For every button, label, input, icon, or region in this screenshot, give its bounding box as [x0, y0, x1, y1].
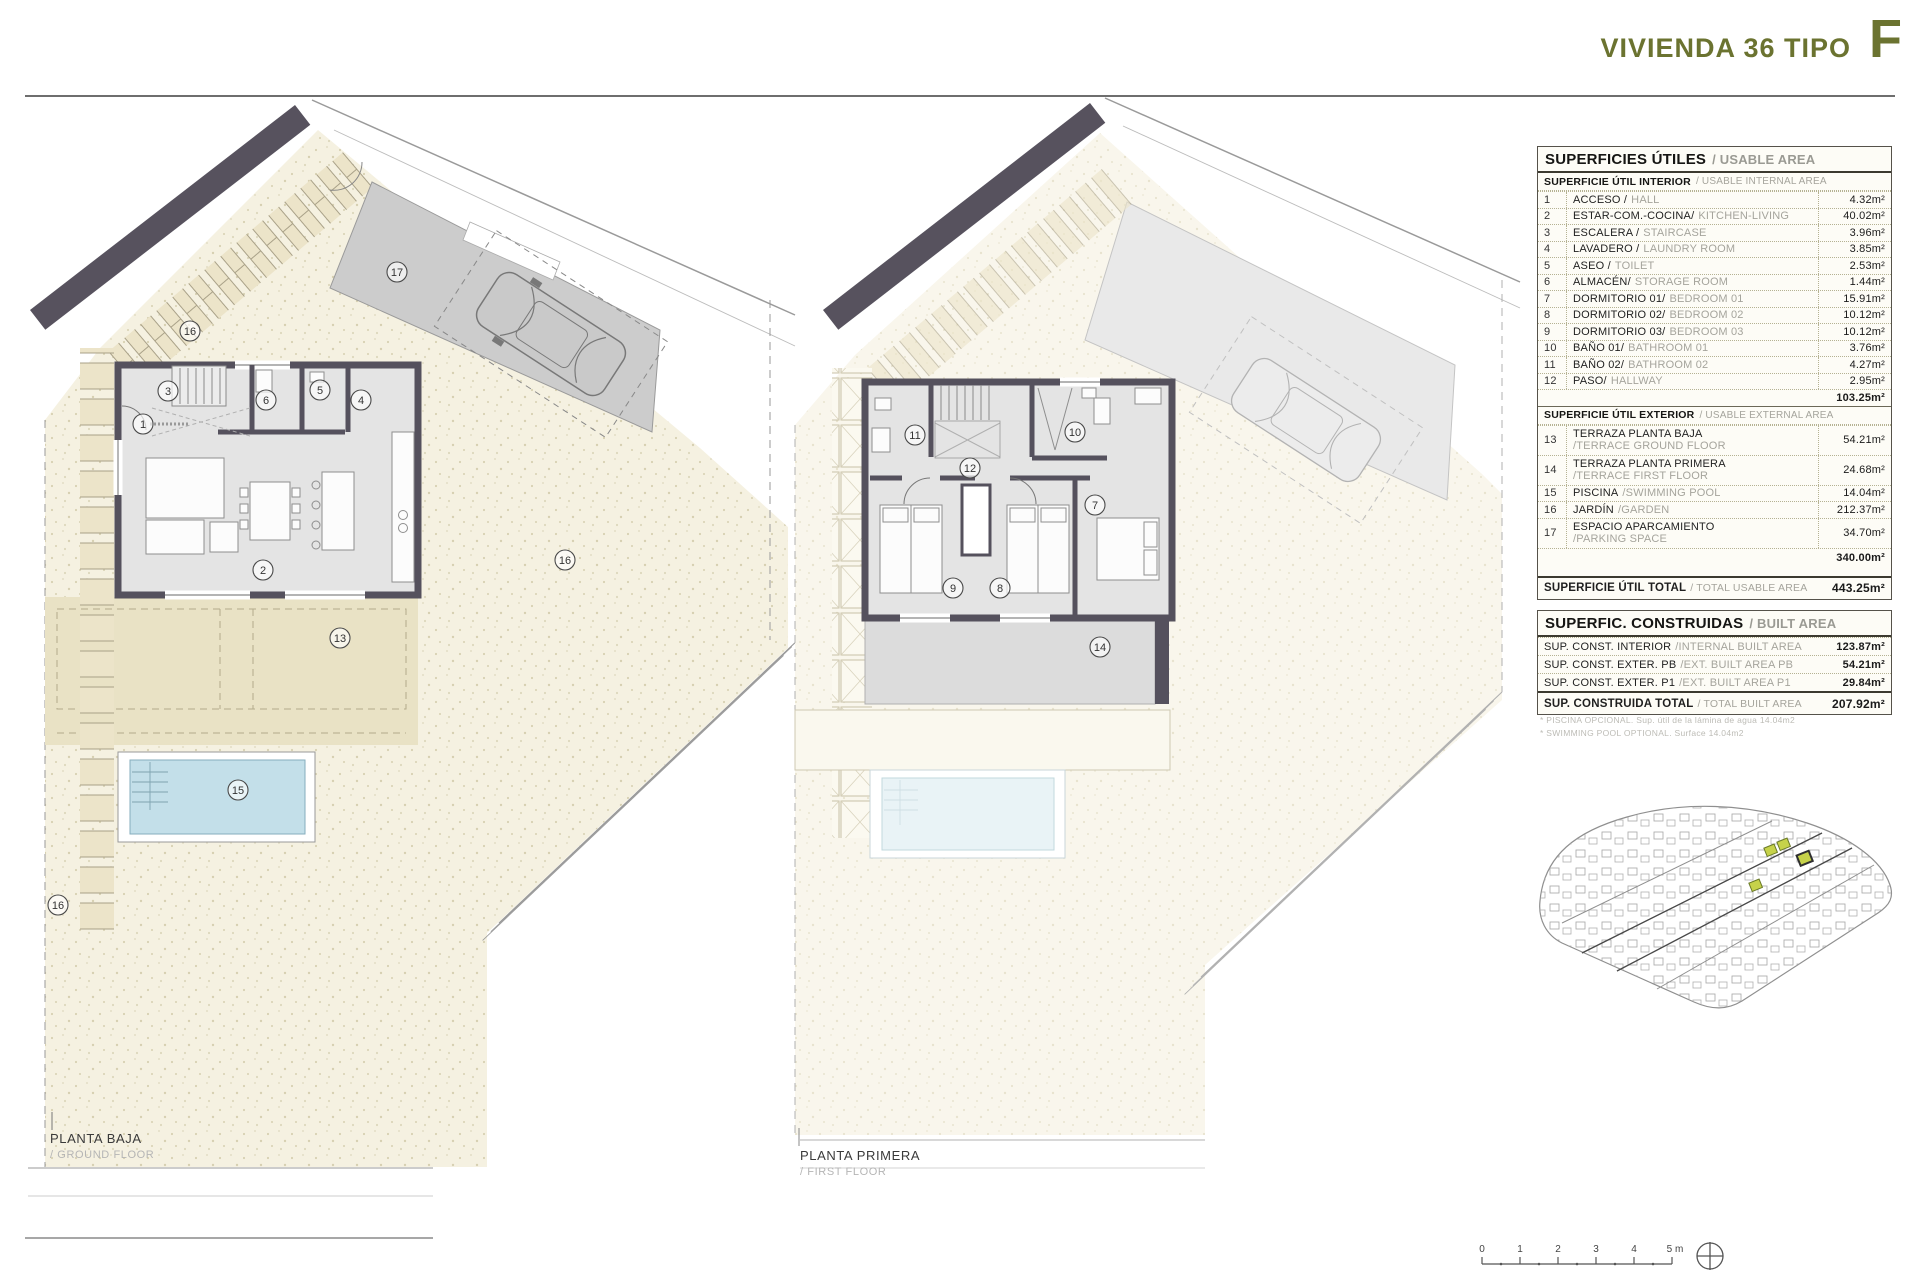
interior-subtotal: 103.25m²: [1538, 389, 1891, 406]
site-key-map: [1522, 793, 1920, 1021]
dining-table: [250, 482, 290, 540]
table-row: 15PISCINA/SWIMMING POOL14.04m²: [1538, 485, 1891, 502]
svg-text:3: 3: [165, 386, 171, 398]
svg-text:16: 16: [184, 326, 196, 338]
svg-text:0: 0: [1479, 1244, 1485, 1255]
table-row: 16JARDÍN/GARDEN212.37m²: [1538, 501, 1891, 518]
room-number: 8: [990, 578, 1010, 598]
scale-bar: 0 1 2 3 4 5 m: [1468, 1238, 1738, 1274]
svg-text:5: 5: [317, 385, 323, 397]
table-row: 6ALMACÉN/STORAGE ROOM1.44m²: [1538, 274, 1891, 291]
footnotes: * PISCINA OPCIONAL. Sup. útil de la lámi…: [1540, 714, 1890, 740]
room-number: 9: [943, 578, 963, 598]
svg-text:5 m: 5 m: [1667, 1244, 1684, 1255]
svg-text:2: 2: [260, 565, 266, 577]
table-row: 7DORMITORIO 01/BEDROOM 0115.91m²: [1538, 290, 1891, 307]
svg-text:1: 1: [140, 419, 146, 431]
svg-text:10: 10: [1069, 427, 1081, 439]
exterior-subheader: SUPERFICIE ÚTIL EXTERIOR/ USABLE EXTERNA…: [1538, 406, 1891, 425]
room-number: 16: [555, 550, 575, 570]
svg-text:17: 17: [391, 267, 403, 279]
usable-area-title: SUPERFICIES ÚTILES/ USABLE AREA: [1538, 147, 1891, 173]
footnote: * PISCINA OPCIONAL. Sup. útil de la lámi…: [1540, 714, 1890, 727]
room-number: 11: [905, 425, 925, 445]
svg-text:14: 14: [1094, 642, 1106, 654]
exterior-subtotal: 340.00m²: [1538, 548, 1891, 567]
table-row: 10BAÑO 01/BATHROOM 013.76m²: [1538, 340, 1891, 357]
beds: [880, 505, 1159, 593]
kitchen-island: [322, 472, 354, 550]
table-row: 13TERRAZA PLANTA BAJA/TERRACE GROUND FLO…: [1538, 425, 1891, 455]
ground-floor-label: PLANTA BAJA / GROUND FLOOR: [50, 1130, 154, 1162]
table-row: SUP. CONST. INTERIOR/INTERNAL BUILT AREA…: [1538, 637, 1891, 655]
usable-area-table: SUPERFICIES ÚTILES/ USABLE AREA SUPERFIC…: [1537, 146, 1892, 600]
svg-text:16: 16: [52, 900, 64, 912]
table-row: 14TERRAZA PLANTA PRIMERA/TERRACE FIRST F…: [1538, 455, 1891, 485]
first-floor-plan: 7 8 9 10 11 12 14: [795, 98, 1520, 1168]
room-number: 7: [1085, 495, 1105, 515]
room-number: 1: [133, 414, 153, 434]
built-area-table: SUPERFIC. CONSTRUIDAS/ BUILT AREA SUP. C…: [1537, 610, 1892, 715]
room-number: 5: [310, 380, 330, 400]
table-row: 17ESPACIO APARCAMIENTO/PARKING SPACE34.7…: [1538, 518, 1891, 548]
table-row: 2ESTAR-COM.-COCINA/KITCHEN-LIVING40.02m²: [1538, 208, 1891, 225]
room-number: 14: [1090, 637, 1110, 657]
svg-text:2: 2: [1555, 1244, 1561, 1255]
north-arrow-icon: [1697, 1242, 1723, 1270]
type-letter: F: [1869, 12, 1902, 66]
svg-text:11: 11: [909, 430, 920, 442]
room-number: 16: [180, 321, 200, 341]
room-number: 4: [351, 390, 371, 410]
room-number: 3: [158, 381, 178, 401]
svg-text:7: 7: [1092, 500, 1098, 512]
svg-text:16: 16: [559, 555, 571, 567]
kitchen-counter: [392, 432, 414, 582]
table-row: 5ASEO /TOILET2.53m²: [1538, 257, 1891, 274]
house-first: [865, 378, 1172, 623]
table-row: 12PASO/HALLWAY2.95m²: [1538, 373, 1891, 390]
interior-subheader: SUPERFICIE ÚTIL INTERIOR/ USABLE INTERNA…: [1538, 173, 1891, 191]
first-floor-label: PLANTA PRIMERA / FIRST FLOOR: [800, 1147, 920, 1179]
table-row: 9DORMITORIO 03/BEDROOM 0310.12m²: [1538, 323, 1891, 340]
built-area-title: SUPERFIC. CONSTRUIDAS/ BUILT AREA: [1538, 611, 1891, 637]
table-row: 8DORMITORIO 02/BEDROOM 0210.12m²: [1538, 307, 1891, 324]
table-row: SUP. CONST. EXTER. PB/EXT. BUILT AREA PB…: [1538, 655, 1891, 673]
svg-text:9: 9: [950, 583, 956, 595]
ground-floor-plan: 1 2 3 4 5 6 13 15 16 16 16 17: [25, 100, 800, 1238]
room-number: 2: [253, 560, 273, 580]
svg-text:15: 15: [232, 785, 244, 797]
svg-text:12: 12: [964, 463, 976, 475]
built-total-row: SUP. CONSTRUIDA TOTAL/ TOTAL BUILT AREA …: [1538, 691, 1891, 714]
header-divider: [25, 95, 1895, 97]
svg-text:3: 3: [1593, 1244, 1599, 1255]
table-row: 1ACCESO /HALL4.32m²: [1538, 191, 1891, 208]
table-row: 11BAÑO 02/BATHROOM 024.27m²: [1538, 356, 1891, 373]
svg-text:4: 4: [1631, 1244, 1637, 1255]
svg-text:6: 6: [263, 395, 269, 407]
room-number: 12: [960, 458, 980, 478]
room-number: 16: [48, 895, 68, 915]
project-title: VIVIENDA 36 TIPO: [1600, 33, 1851, 64]
table-row: 4LAVADERO /LAUNDRY ROOM3.85m²: [1538, 241, 1891, 258]
swimming-pool-ghost: [870, 770, 1065, 858]
swimming-pool: [118, 752, 315, 842]
footnote: * SWIMMING POOL OPTIONAL. Surface 14.04m…: [1540, 727, 1890, 740]
page-title: VIVIENDA 36 TIPO F: [1600, 12, 1902, 66]
table-row: SUP. CONST. EXTER. P1/EXT. BUILT AREA P1…: [1538, 673, 1891, 691]
room-number: 10: [1065, 422, 1085, 442]
usable-total-row: SUPERFICIE ÚTIL TOTAL/ TOTAL USABLE AREA…: [1538, 576, 1891, 599]
svg-text:1: 1: [1517, 1244, 1523, 1255]
room-number: 15: [228, 780, 248, 800]
table-row: 3ESCALERA /STAIRCASE3.96m²: [1538, 224, 1891, 241]
svg-text:8: 8: [997, 583, 1003, 595]
svg-text:13: 13: [334, 633, 346, 645]
room-number: 17: [387, 262, 407, 282]
svg-text:4: 4: [358, 395, 364, 407]
room-number: 6: [256, 390, 276, 410]
room-number: 13: [330, 628, 350, 648]
